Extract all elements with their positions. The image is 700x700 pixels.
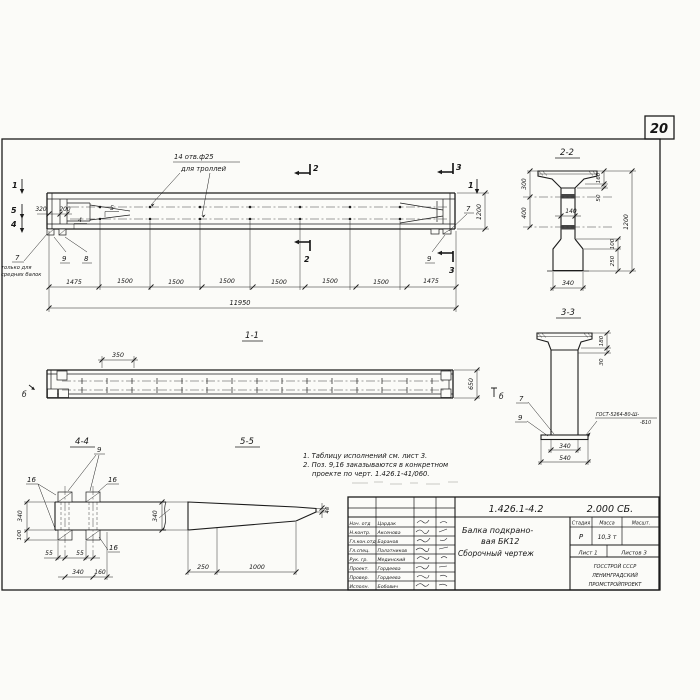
cut-1-right: 1 <box>468 181 474 190</box>
sheet-number: 20 <box>650 122 668 137</box>
pos-4-label: 4 <box>78 216 82 224</box>
mass-header: Масса <box>599 521 614 527</box>
note-line-2: 2. Поз. 9,16 заказываются в конкретном <box>303 461 448 469</box>
staff-role: Гл.кон.отд <box>350 539 376 545</box>
chain-dim: 1500 <box>271 279 287 286</box>
anchor-pads <box>58 492 100 540</box>
staff-name: Бобович <box>378 584 399 590</box>
height-dim: 1200 <box>457 191 489 232</box>
sheet-label: Лист 1 <box>577 551 597 557</box>
dim-140: 140 <box>565 208 577 215</box>
dim-1200: 1200 <box>476 204 483 220</box>
total-length-dim: 11950 <box>230 299 251 307</box>
chain-dim: 1500 <box>168 279 184 286</box>
staff-rows: Нач. отд Цардак Н.контр. Аксенова Гл.кон… <box>350 521 408 590</box>
section-title: 4-4 <box>75 437 89 447</box>
dim-340: 340 <box>152 510 159 522</box>
pos-5-label: 5 <box>110 204 114 212</box>
dim-340: 340 <box>562 280 574 287</box>
dim-340-bottom: 340 <box>72 569 84 576</box>
pos-9-label: 9 <box>62 255 67 263</box>
scale-header: Масшт. <box>632 521 650 527</box>
staff-role: Провер. <box>350 575 369 581</box>
staff-name: Аксенова <box>377 530 401 536</box>
plan-end-plates <box>48 371 452 398</box>
doc-suffix: 2.000 СБ. <box>587 504 633 515</box>
pos-16-c: 16 <box>109 544 118 552</box>
notes-block: 1. Таблицу исполнений см. лист 3. 2. Поз… <box>303 452 448 478</box>
mass-value: 10,3 т <box>598 534 617 541</box>
dim-180: 180 <box>599 335 605 346</box>
staff-name: Цардак <box>378 521 397 527</box>
cut-label-5: 5 <box>11 206 17 215</box>
cut-2-bottom: 2 <box>304 255 310 264</box>
chain-dim: 1500 <box>219 278 235 285</box>
plan-dims: 350 650 <box>98 352 480 401</box>
main-elevation-view: 14 отв.ф25 для троллей 1 5 4 7 только дл… <box>1 153 489 312</box>
staff-name: Гордеева <box>378 566 401 572</box>
pos-marker-7-left: 7 только для средних балок <box>1 234 47 278</box>
note-line-3: проекте по черт. 1.426.1-41/060. <box>312 470 430 478</box>
pos-16-a: 16 <box>27 476 36 484</box>
only-note-line1: только для <box>1 265 32 271</box>
section-2-2: 2-2 300 400 140 160 50 1200 <box>521 148 636 291</box>
weld-note-line1: ГОСТ-5264-80-Ш- <box>596 412 639 418</box>
staff-role: Проект. <box>350 566 369 572</box>
pos-16-b: 16 <box>108 476 117 484</box>
title-block: 1.426.1-4.2 2.000 СБ. Балка подкрано- ва… <box>348 482 660 590</box>
section22-dims: 300 400 140 160 50 1200 100 250 340 <box>521 169 636 292</box>
pos-7-right: 7 <box>466 205 471 213</box>
dim-250: 250 <box>610 255 616 266</box>
dim-400: 400 <box>521 207 528 219</box>
dim-50: 50 <box>596 194 602 202</box>
dim-320: 320 <box>35 207 46 213</box>
end-dims: 320 200 <box>35 207 72 217</box>
staff-name: Гордеева <box>378 575 401 581</box>
section33-dims: 180 30 340 540 <box>538 331 611 466</box>
doc-number: 1.426.1-4.2 <box>489 504 544 515</box>
cut-mark-1-right: 1 <box>468 179 479 194</box>
bearing-pads <box>47 229 451 235</box>
org-line3: ПРОМСТРОЙПРОЕКТ <box>589 581 643 588</box>
dim-1200: 1200 <box>623 214 630 230</box>
pos-7-label: 7 <box>15 254 20 262</box>
staff-name: Баранов <box>378 539 399 545</box>
pos-8-label: 8 <box>84 255 89 263</box>
org-line1: ГОССТРОЙ СССР <box>594 563 637 570</box>
org-line2: ЛЕНИНГРАДСКИЙ <box>591 572 638 579</box>
dim-160: 160 <box>94 569 106 576</box>
staff-role: Нач. отд <box>350 521 371 527</box>
dim-100: 100 <box>610 238 616 249</box>
chain-dim: 1500 <box>117 278 133 285</box>
note-line-1: 1. Таблицу исполнений см. лист 3. <box>303 452 427 460</box>
dimension-chain: 1475 1500 1500 1500 1500 1500 1500 1475 … <box>47 231 459 312</box>
signature-scribbles <box>416 520 448 586</box>
stage-header: Стадия <box>572 521 591 527</box>
cut-marks-2: 2 2 <box>294 164 319 264</box>
section-1-1: 1-1 350 650 б б <box>22 331 504 401</box>
section-title: 3-3 <box>561 308 575 318</box>
staff-name: Мединский <box>378 557 406 563</box>
staff-role: Рук. гр. <box>350 557 368 563</box>
dim-300: 300 <box>521 178 528 190</box>
dim-250: 250 <box>197 564 209 571</box>
dim-40: 40 <box>325 506 331 513</box>
staff-role: Н.контр. <box>350 530 371 536</box>
drawing-canvas: 20 14 отв.ф25 <box>0 0 700 700</box>
dim-55a: 55 <box>45 550 53 557</box>
dim-340-left: 340 <box>17 510 24 522</box>
pos-flags: 5 4 <box>74 204 119 229</box>
stage-value: Р <box>579 533 584 541</box>
hole-note-line2: для троллей <box>180 165 227 173</box>
dim-350: 350 <box>112 352 124 359</box>
section33-markers: 7 9 ГОСТ-5264-80-Ш- -Б10 <box>515 395 657 437</box>
dim-540: 540 <box>559 455 571 462</box>
dim-160: 160 <box>596 172 602 183</box>
chain-dim: 1475 <box>423 278 439 285</box>
pos-9: 9 <box>97 446 102 454</box>
staff-role: Гл.спец. <box>350 548 370 554</box>
dim-100: 100 <box>17 529 23 540</box>
dim-30: 30 <box>599 358 605 366</box>
dim-1000: 1000 <box>249 564 265 571</box>
drawing-title-line3: Сборочный чертеж <box>458 549 534 558</box>
drawing-sheet: 20 14 отв.ф25 <box>0 0 700 700</box>
staff-role: Исполн. <box>350 584 370 590</box>
sheets-label: Листов 3 <box>620 551 647 557</box>
section-title: 5-5 <box>240 437 254 447</box>
section-title: 1-1 <box>245 331 259 341</box>
staff-name: Палатников <box>378 548 408 554</box>
chain-dim: 1475 <box>66 279 82 286</box>
section-4-4: 4-4 9 16 16 16 340 100 <box>17 437 170 580</box>
section-3-3: 3-3 7 9 ГОСТ-5264-80-Ш- -Б10 180 30 340 <box>515 308 657 465</box>
pos-9-right: 9 <box>427 255 432 263</box>
cut-label-1: 1 <box>12 181 18 190</box>
section-title: 2-2 <box>560 148 574 158</box>
weld-note-line2: -Б10 <box>640 420 651 426</box>
hole-count-note: 14 отв.ф25 для троллей <box>151 153 240 218</box>
dim-650: 650 <box>468 378 475 390</box>
cut-label-4: 4 <box>10 220 17 229</box>
pos-7: 7 <box>519 395 524 403</box>
dim-340: 340 <box>559 443 571 450</box>
hole-note-line1: 14 отв.ф25 <box>174 153 214 161</box>
cut-marks-left: 1 5 4 <box>10 179 24 233</box>
pos-markers-9-8: 9 8 <box>54 237 92 263</box>
cut-3-top: 3 <box>456 163 462 172</box>
chain-dim: 1500 <box>322 278 338 285</box>
section44-markers: 9 16 16 16 <box>26 446 120 552</box>
pos-9: 9 <box>518 414 523 422</box>
marker-b-right: б <box>499 392 504 401</box>
dim-55b: 55 <box>76 550 84 557</box>
drawing-title-line1: Балка подкрано- <box>462 526 533 535</box>
cut-2-top: 2 <box>313 164 319 173</box>
drawing-title-line2: вая БК12 <box>481 537 519 546</box>
marker-b-left: б <box>22 390 27 399</box>
cut-3-bottom: 3 <box>449 266 455 275</box>
chain-dim: 1500 <box>373 279 389 286</box>
beam-outline <box>47 193 455 229</box>
only-note-line2: средних балок <box>1 272 42 278</box>
